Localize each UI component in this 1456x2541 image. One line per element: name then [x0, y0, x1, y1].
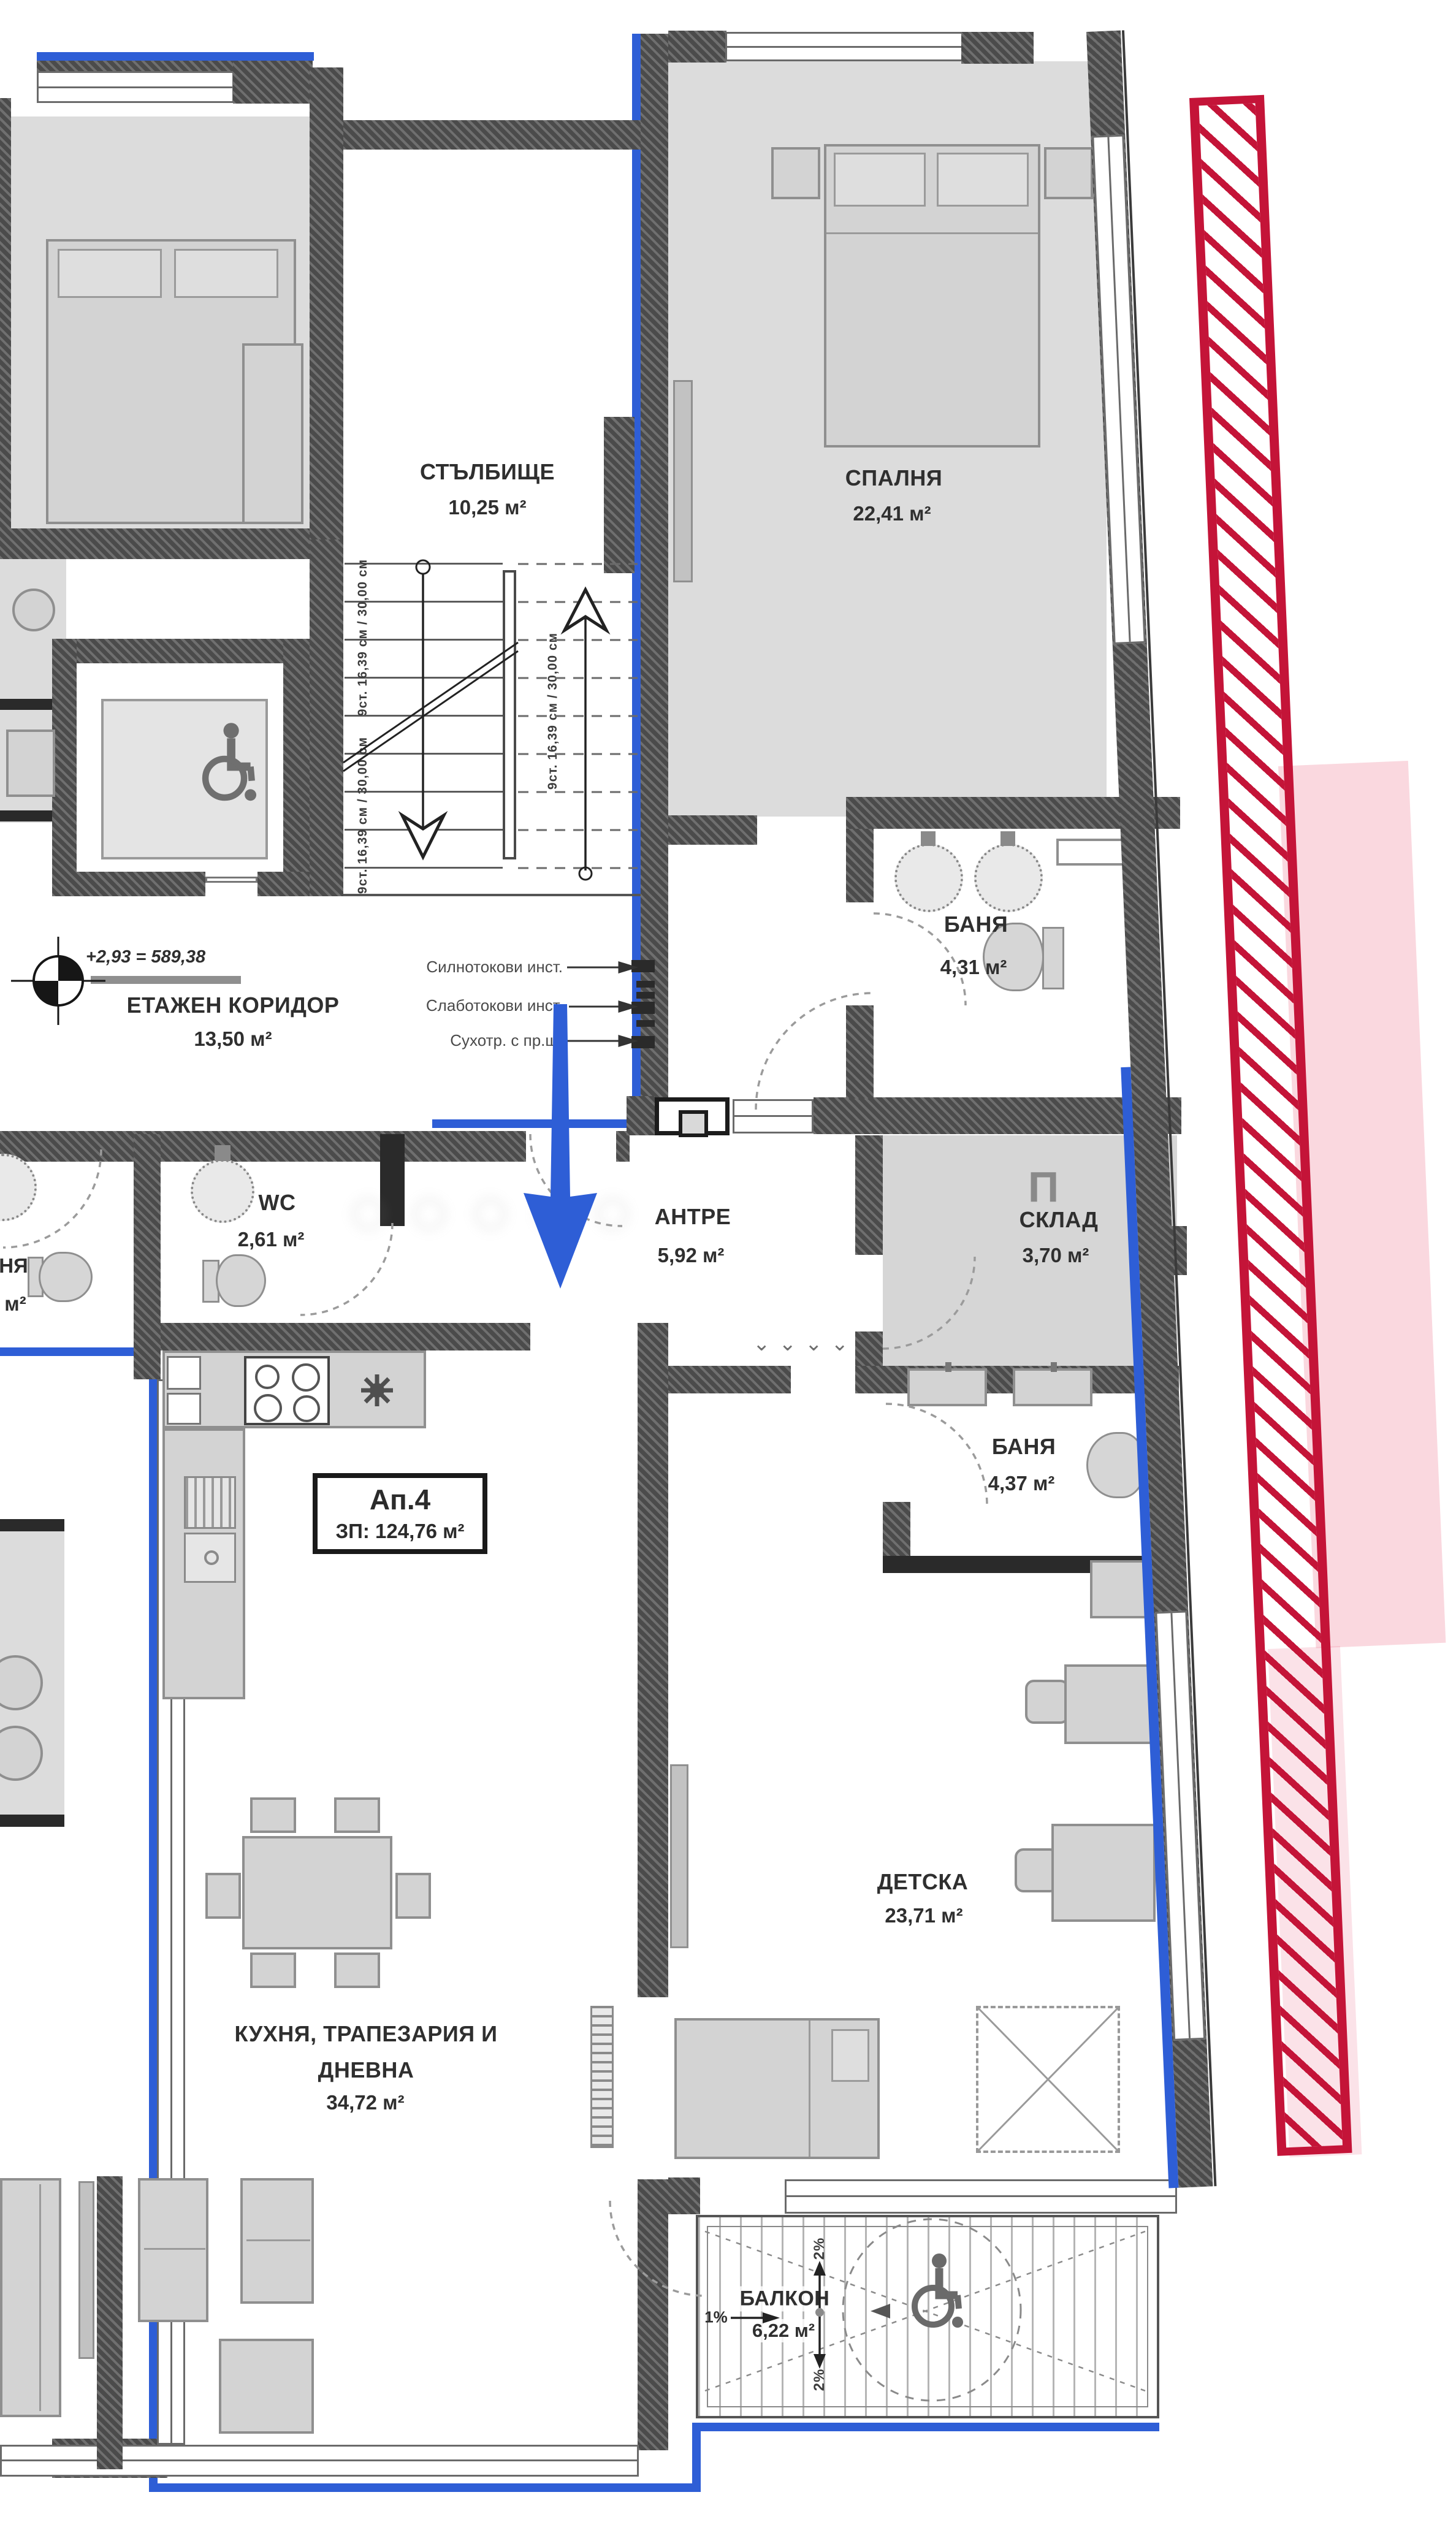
stair-break-line — [343, 642, 518, 771]
wheelchair-icon-elevator — [205, 723, 256, 801]
fan-icon — [361, 1374, 393, 1406]
wheelchair-icon-balcony — [915, 2253, 963, 2328]
kids-wardrobe-x — [978, 2008, 1118, 2151]
bath1-tap-left — [921, 831, 936, 846]
door-arc-neighbor-bath — [3, 1149, 101, 1248]
door-arc-bath1 — [874, 913, 966, 1005]
stair-arrow-up — [565, 590, 606, 880]
door-arc-wc — [300, 1223, 392, 1315]
door-arc-bedroom — [756, 993, 872, 1110]
bath1-tap-right — [1001, 831, 1015, 846]
wc-tap — [215, 1145, 231, 1161]
balcony-markings — [705, 2219, 1145, 2401]
door-arc-balcony — [610, 2201, 705, 2296]
electrical-leaders — [564, 962, 635, 1046]
plan-overlay — [0, 0, 1456, 2541]
stair-arrow-down — [402, 560, 444, 857]
entrance-arrow — [524, 1004, 597, 1289]
door-arc-storage — [883, 1257, 975, 1349]
door-arc-bath2 — [886, 1404, 987, 1505]
elevation-marker-icon — [11, 937, 105, 1025]
floor-plan: ◦◦◦◦◦ — [0, 0, 1456, 2541]
